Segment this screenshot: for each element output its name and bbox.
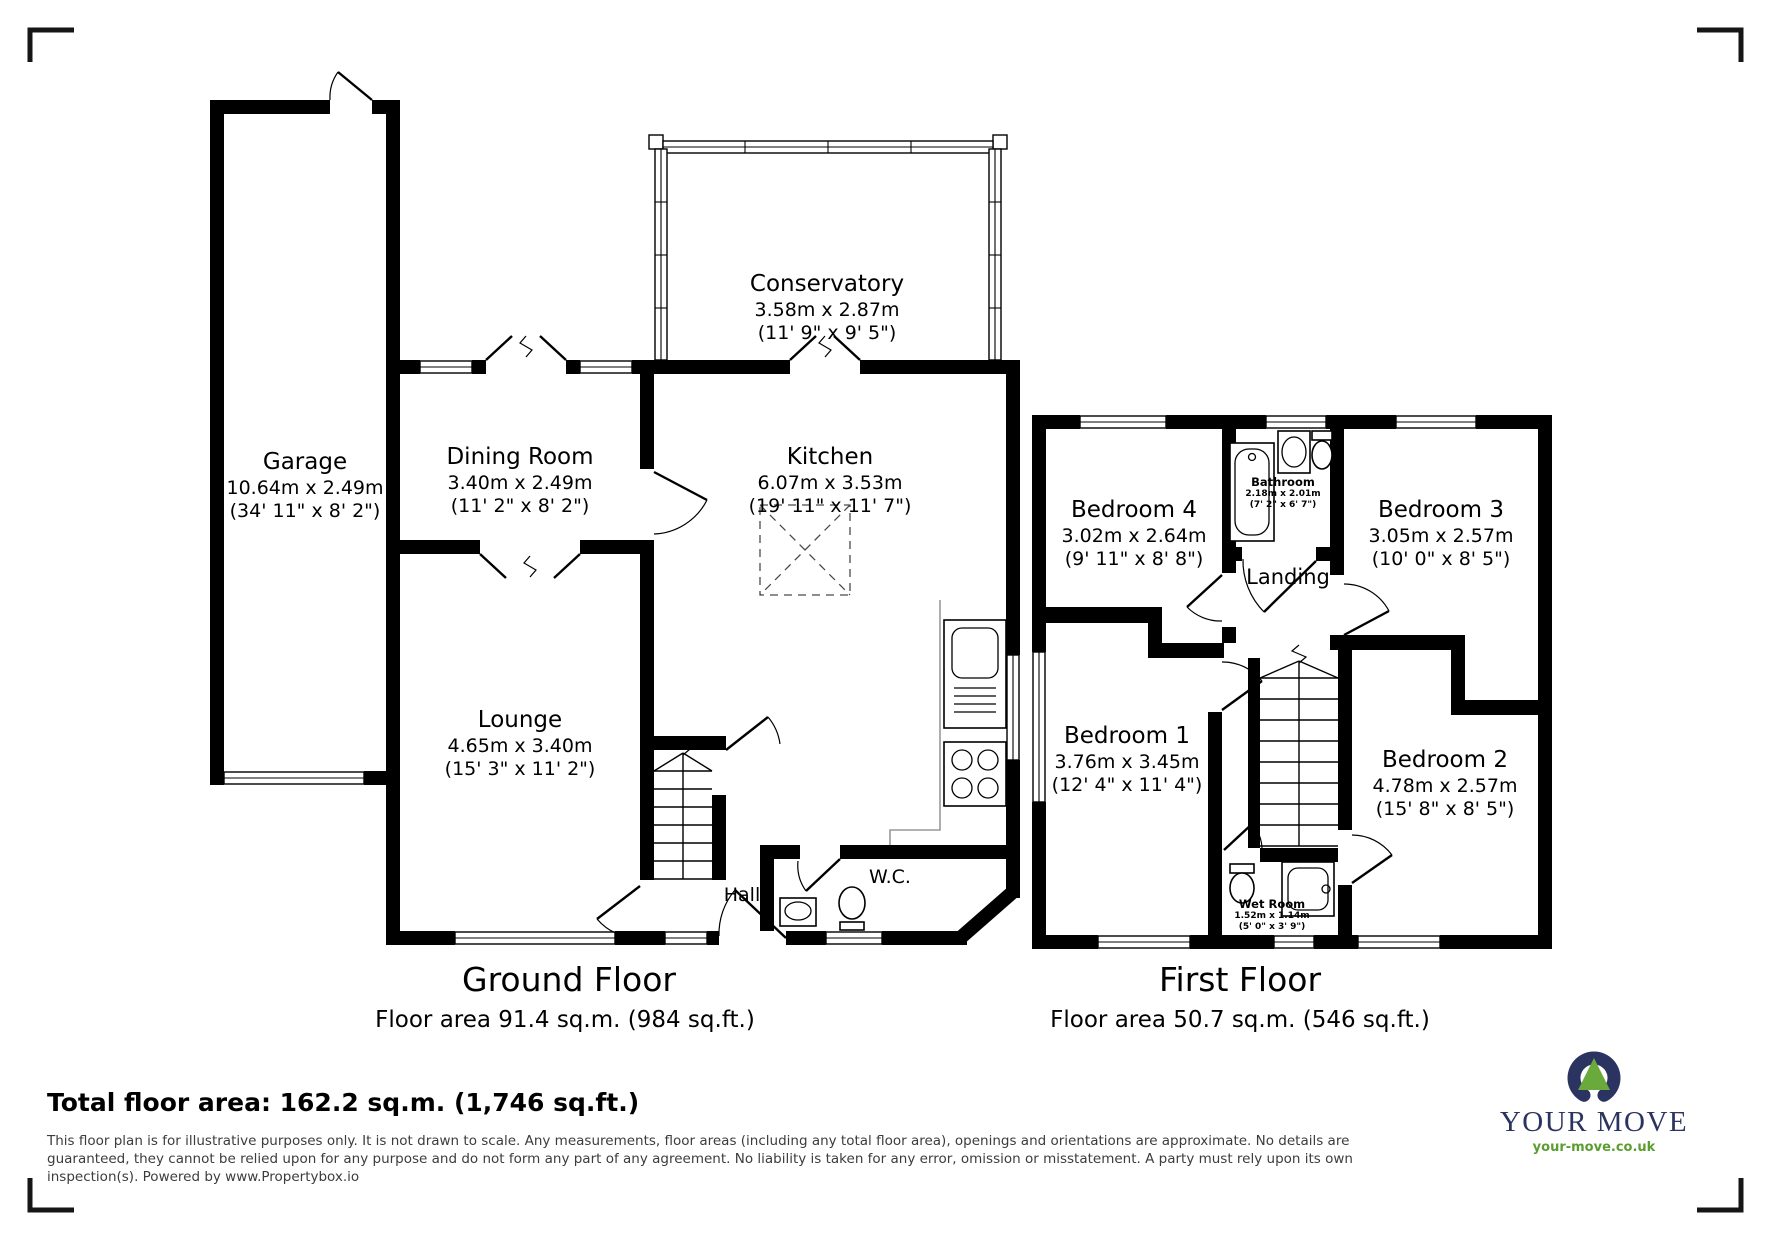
room-label-garage: Garage 10.64m x 2.49m (34' 11" x 8' 2") bbox=[226, 448, 383, 524]
first-floor-area: Floor area 50.7 sq.m. (546 sq.ft.) bbox=[1050, 1007, 1430, 1033]
wc-door bbox=[798, 859, 840, 891]
room-label-bedroom1: Bedroom 1 3.76m x 3.45m (12' 4" x 11' 4"… bbox=[1052, 722, 1203, 798]
lounge-hall-door bbox=[597, 886, 640, 938]
bathroom-toilet-icon bbox=[1312, 431, 1332, 469]
room-label-hall: Hall bbox=[724, 884, 761, 908]
garage-window bbox=[224, 772, 364, 784]
total-floor-area: Total floor area: 162.2 sq.m. (1,746 sq.… bbox=[47, 1088, 639, 1117]
staircase-ground bbox=[654, 737, 712, 879]
room-label-lounge: Lounge 4.65m x 3.40m (15' 3" x 11' 2") bbox=[445, 706, 596, 782]
room-label-bedroom4: Bedroom 4 3.02m x 2.64m (9' 11" x 8' 8") bbox=[1062, 496, 1207, 572]
lounge-double-doors bbox=[480, 554, 580, 578]
floorplan-page: Garage 10.64m x 2.49m (34' 11" x 8' 2") … bbox=[0, 0, 1771, 1239]
room-label-bathroom: Bathroom 2.18m x 2.01m (7' 2" x 6' 7") bbox=[1245, 476, 1320, 511]
floorplan-drawing bbox=[0, 0, 1771, 1239]
room-label-landing: Landing bbox=[1246, 564, 1330, 590]
kitchen-counter bbox=[890, 600, 940, 845]
room-label-bedroom2: Bedroom 2 4.78m x 2.57m (15' 8" x 8' 5") bbox=[1373, 746, 1518, 822]
ground-floor-area: Floor area 91.4 sq.m. (984 sq.ft.) bbox=[375, 1007, 755, 1033]
disclaimer-line-2: guaranteed, they cannot be relied upon f… bbox=[47, 1150, 1353, 1168]
room-label-kitchen: Kitchen 6.07m x 3.53m (19' 11" x 11' 7") bbox=[749, 443, 912, 519]
bathroom-sink-icon bbox=[1278, 431, 1310, 473]
room-label-wc: W.C. bbox=[869, 866, 911, 890]
brand-name: YOUR MOVE bbox=[1500, 1106, 1688, 1139]
brand-url: your-move.co.uk bbox=[1533, 1140, 1656, 1155]
disclaimer-line-3: inspection(s). Powered by www.Propertybo… bbox=[47, 1168, 1353, 1186]
dining-windows bbox=[420, 361, 632, 373]
dining-french-doors bbox=[486, 336, 566, 360]
ground-floor-title: Ground Floor bbox=[462, 960, 676, 999]
corner-mark-top-right bbox=[1697, 30, 1741, 62]
wc-sink-icon bbox=[780, 898, 816, 926]
corner-marks bbox=[30, 30, 1741, 1210]
garage-door bbox=[330, 72, 372, 100]
bedroom4-door bbox=[1187, 575, 1222, 621]
wc-toilet-icon bbox=[839, 887, 865, 930]
room-label-wetroom: Wet Room 1.52m x 1.14m (5' 0" x 3' 9") bbox=[1234, 898, 1309, 933]
room-label-conservatory: Conservatory 3.58m x 2.87m (11' 9" x 9' … bbox=[750, 270, 904, 346]
bedroom2-door bbox=[1352, 835, 1392, 883]
first-floor-title: First Floor bbox=[1159, 960, 1321, 999]
kitchen-sink-icon bbox=[944, 620, 1006, 728]
disclaimer-line-1: This floor plan is for illustrative purp… bbox=[47, 1132, 1353, 1150]
corner-mark-top-left bbox=[30, 30, 74, 62]
hob-icon bbox=[944, 742, 1006, 806]
corner-mark-bottom-right bbox=[1697, 1178, 1741, 1210]
room-label-bedroom3: Bedroom 3 3.05m x 2.57m (10' 0" x 8' 5") bbox=[1369, 496, 1514, 572]
disclaimer-text: This floor plan is for illustrative purp… bbox=[47, 1132, 1353, 1186]
staircase-first bbox=[1260, 645, 1338, 846]
kitchen-hall-door bbox=[726, 717, 780, 750]
bedroom3-door bbox=[1344, 584, 1389, 635]
room-label-dining-room: Dining Room 3.40m x 2.49m (11' 2" x 8' 2… bbox=[446, 443, 593, 519]
dining-kitchen-door bbox=[654, 472, 707, 534]
your-move-logo bbox=[1574, 1058, 1614, 1095]
